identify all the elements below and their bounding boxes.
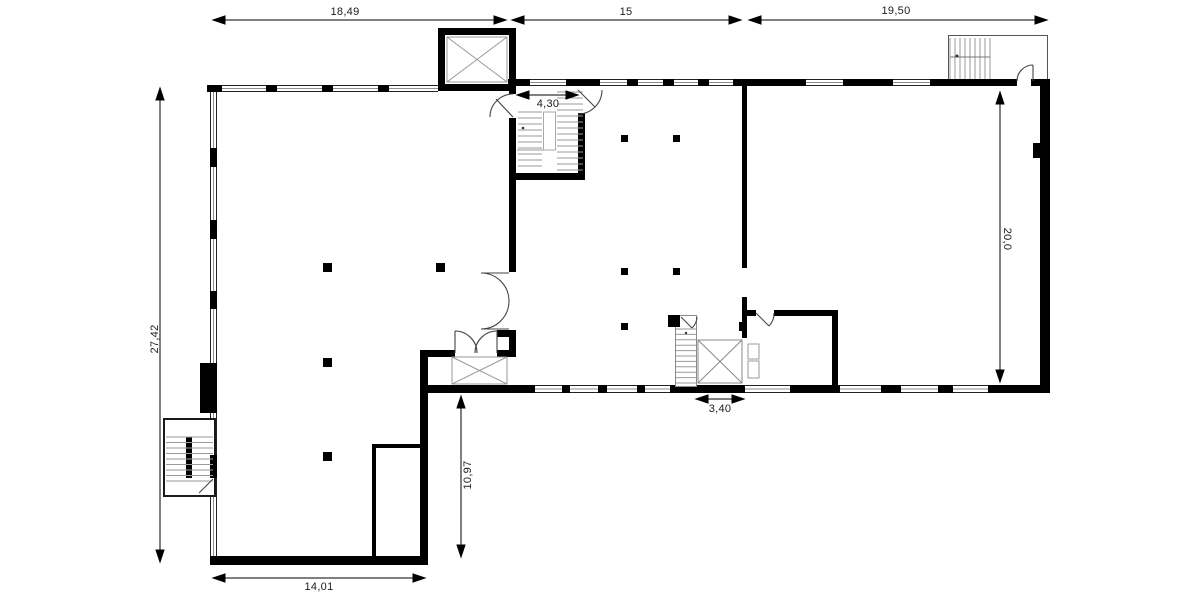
vestibule-wall <box>497 350 516 357</box>
dim-annex-height: 10,97 <box>462 445 474 505</box>
dimension-lines <box>156 16 1047 582</box>
elevator-shaft-top <box>438 28 516 91</box>
central-wall <box>497 330 516 337</box>
stairwell-wall <box>578 113 585 173</box>
wall-segment <box>516 385 535 393</box>
door-opening-top-right <box>1017 78 1031 87</box>
wall-segment <box>322 85 333 92</box>
wall-segment <box>698 79 709 86</box>
dim-right: 20,0 <box>1001 209 1013 269</box>
dim-top-mid: 15 <box>606 6 646 18</box>
wall-segment <box>210 220 217 239</box>
wall-segment <box>508 79 530 86</box>
wall-segment <box>566 79 600 86</box>
wall-segment <box>938 385 953 393</box>
floor-plan-canvas: 18,49 15 19,50 27,42 20,0 4,30 3,40 10,9… <box>0 0 1200 600</box>
stairwell-wall <box>509 118 516 272</box>
divider-wall <box>742 297 747 338</box>
annex-room-wall <box>372 444 376 556</box>
dim-left: 27,42 <box>149 309 161 369</box>
wall-segment <box>843 79 893 86</box>
wall-segment <box>598 385 607 393</box>
stairwell-wall <box>509 86 516 94</box>
column <box>673 268 680 275</box>
room-wall <box>747 310 756 316</box>
stair-treads <box>166 38 990 481</box>
right-wall <box>1040 79 1050 393</box>
wc-fixtures <box>748 344 759 378</box>
column <box>436 263 445 272</box>
top-right-exterior-stair-landing <box>948 35 1048 82</box>
annex-room-wall <box>372 444 428 448</box>
column <box>621 135 628 142</box>
annex-east-wall <box>420 350 428 565</box>
linework-overlay <box>0 0 1200 600</box>
dim-annex-width: 14,01 <box>289 581 349 593</box>
column <box>621 323 628 330</box>
column <box>621 268 628 275</box>
divider-wall <box>742 86 747 268</box>
column <box>673 135 680 142</box>
wall-pier-right <box>1033 143 1040 158</box>
vestibule-x-box <box>452 357 507 384</box>
wall-segment <box>210 291 217 309</box>
room-wall <box>832 310 838 392</box>
wall-segment <box>266 85 277 92</box>
wall-segment <box>562 385 570 393</box>
wall-pier-left <box>200 363 217 413</box>
wall-segment <box>930 79 1017 86</box>
door-swings <box>199 65 1033 493</box>
wall-segment <box>663 79 674 86</box>
wall-segment <box>210 455 217 478</box>
divider-wall-pier <box>739 322 747 331</box>
dim-top-left: 18,49 <box>315 6 375 18</box>
wall-segment <box>881 385 901 393</box>
column <box>323 263 332 272</box>
wall-segment <box>637 385 645 393</box>
wall-segment <box>210 148 217 167</box>
wall-segment <box>378 85 389 92</box>
bottom-wall-vestibule <box>420 385 516 393</box>
wall-segment <box>733 79 806 86</box>
dim-top-right: 19,50 <box>866 5 926 17</box>
wall-segment <box>207 85 222 92</box>
annex-south-wall <box>210 556 428 565</box>
dim-entry: 4,30 <box>521 98 575 110</box>
stairwell-detail <box>517 112 556 150</box>
stairwell-wall <box>509 173 585 180</box>
dim-core: 3,40 <box>694 403 746 415</box>
wall-segment <box>627 79 638 86</box>
elevator-x-mid <box>698 340 742 383</box>
mid-stair-wall <box>668 315 680 327</box>
column <box>323 452 332 461</box>
room-wall <box>774 310 838 316</box>
column <box>323 358 332 367</box>
mid-stair-center-rail <box>186 437 192 478</box>
